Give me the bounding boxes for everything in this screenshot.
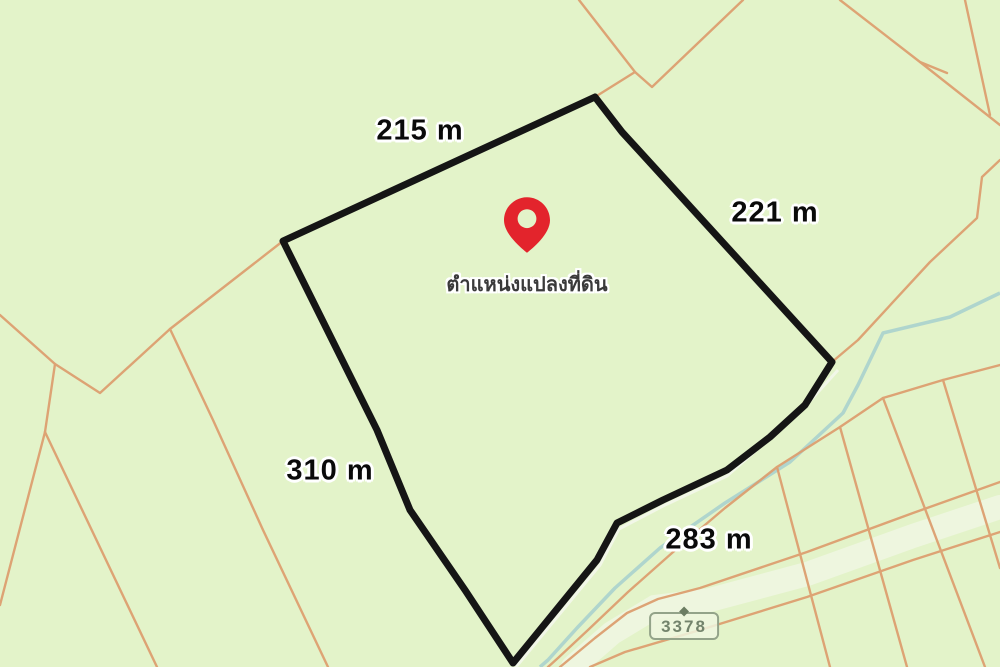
parcel-side-label-right: 221 m — [731, 197, 818, 230]
parcel-side-label-top: 215 m — [376, 115, 463, 148]
parcel-side-label-bottom: 283 m — [665, 524, 752, 557]
route-shield: 3378 — [649, 612, 719, 640]
map-canvas[interactable]: 215 m 221 m 310 m 283 m ตำแหน่งแปลงที่ดิ… — [0, 0, 1000, 667]
location-pin-icon[interactable] — [504, 197, 550, 253]
map-layers — [0, 0, 1000, 667]
marker-label: ตำแหน่งแปลงที่ดิน — [446, 268, 607, 300]
parcel-side-label-left: 310 m — [286, 455, 373, 488]
highway-band — [573, 507, 1000, 667]
route-number: 3378 — [661, 617, 707, 636]
